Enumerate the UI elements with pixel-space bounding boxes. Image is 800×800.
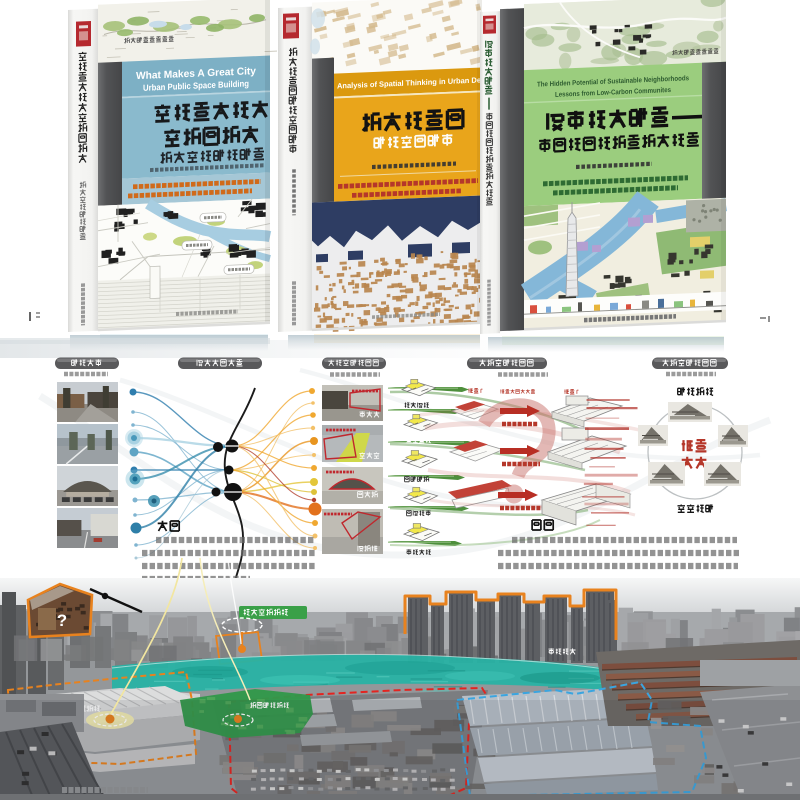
svg-text:?: ? xyxy=(57,611,67,630)
